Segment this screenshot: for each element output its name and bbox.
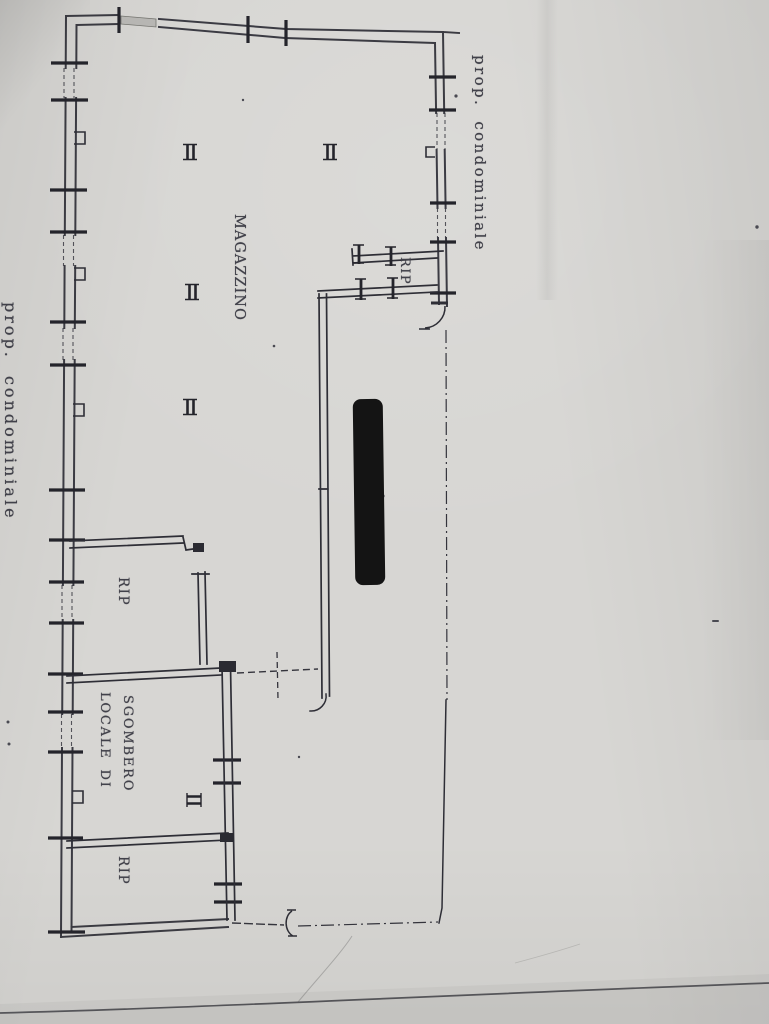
dashed-boundaries [232, 330, 447, 926]
rip-bottom-top-wall [67, 833, 228, 848]
label-magazzino: MAGAZZINO [231, 214, 247, 321]
window-gray-block [121, 16, 156, 27]
label-prop-condominiale-right: prop. condominiale [471, 55, 489, 252]
right-thin-wall [439, 700, 446, 923]
label-rip-middle-room: RIP [115, 577, 131, 606]
window-dashes [62, 68, 446, 748]
pillar-ticks [48, 7, 456, 932]
label-locale-di: LOCALE DI [97, 692, 112, 789]
label-rip-bottom-room: RIP [115, 856, 131, 885]
label-rip-top-room: RIP [397, 257, 412, 285]
label-prop-condominiale-left: prop. condominiale [1, 302, 20, 521]
right-wall [435, 32, 447, 306]
redaction-mark [353, 399, 386, 585]
paper-fold [0, 936, 769, 1024]
door-swings [286, 303, 448, 936]
bottom-wall [61, 919, 228, 937]
pillar-symbols [183, 145, 337, 808]
lower-right-wall [222, 666, 235, 920]
scanned-floor-plan-page: prop. condominiale prop. condominiale MA… [0, 0, 769, 1024]
locale-top-wall [67, 668, 221, 683]
left-wall [61, 16, 77, 937]
label-sgombero: SGOMBERO [120, 695, 135, 792]
outer-walls [61, 15, 459, 937]
interior-wall-door-hook [310, 694, 326, 711]
interior-vertical-wall [319, 294, 330, 698]
long-wall [318, 285, 437, 298]
rip-top-window-ticks [353, 245, 398, 300]
rip-middle-walls [70, 536, 209, 664]
